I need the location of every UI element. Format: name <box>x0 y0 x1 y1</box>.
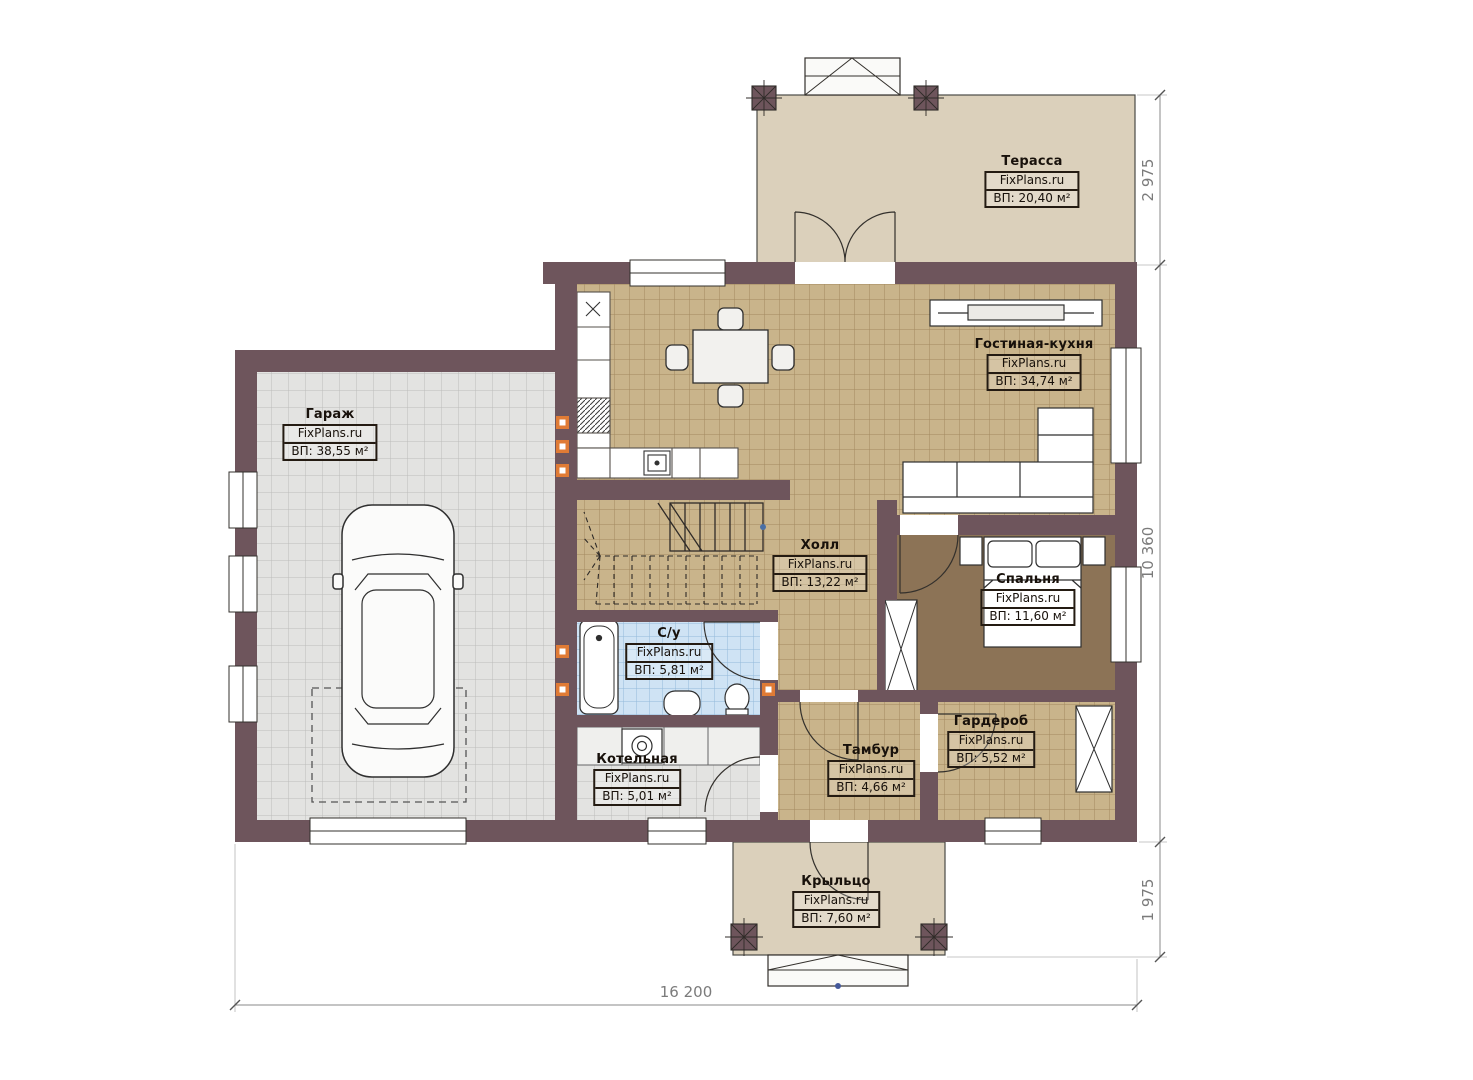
dimension-bottom: 16 200 <box>660 983 713 1001</box>
room-area: ВП: 5,01 м² <box>595 789 679 805</box>
room-name: Гардероб <box>947 714 1035 729</box>
room-name: Холл <box>772 538 867 553</box>
room-area: ВП: 7,60 м² <box>794 911 878 927</box>
room-info-box: FixPlans.ru ВП: 5,01 м² <box>593 769 681 806</box>
room-info-box: FixPlans.ru ВП: 5,81 м² <box>625 643 713 680</box>
dimension-right-top: 2 975 <box>1139 159 1157 202</box>
room-label-porch: Крыльцо FixPlans.ru ВП: 7,60 м² <box>792 874 880 928</box>
room-label-garage: Гараж FixPlans.ru ВП: 38,55 м² <box>282 407 377 461</box>
site-watermark: FixPlans.ru <box>794 893 878 911</box>
room-name: Тамбур <box>827 743 915 758</box>
tv-console <box>930 300 1102 326</box>
dimension-right-middle: 10 360 <box>1139 527 1157 580</box>
site-watermark: FixPlans.ru <box>627 645 711 663</box>
wardrobe-closet <box>1076 706 1112 792</box>
room-label-bathroom: С/у FixPlans.ru ВП: 5,81 м² <box>625 626 713 680</box>
car <box>333 505 463 777</box>
site-watermark: FixPlans.ru <box>774 557 865 575</box>
floor-plan-page: Терасса FixPlans.ru ВП: 20,40 м² Гараж F… <box>0 0 1473 1080</box>
room-info-box: FixPlans.ru ВП: 13,22 м² <box>772 555 867 592</box>
kitchen-sink <box>644 451 670 475</box>
room-area: ВП: 34,74 м² <box>988 374 1079 390</box>
room-info-box: FixPlans.ru ВП: 38,55 м² <box>282 424 377 461</box>
room-label-boiler: Котельная FixPlans.ru ВП: 5,01 м² <box>593 752 681 806</box>
room-area: ВП: 11,60 м² <box>982 609 1073 625</box>
room-area: ВП: 5,81 м² <box>627 663 711 679</box>
room-name: Крыльцо <box>792 874 880 889</box>
room-label-bedroom: Спальня FixPlans.ru ВП: 11,60 м² <box>980 572 1075 626</box>
room-info-box: FixPlans.ru ВП: 34,74 м² <box>986 354 1081 391</box>
site-watermark: FixPlans.ru <box>982 591 1073 609</box>
room-area: ВП: 5,52 м² <box>949 751 1033 767</box>
porch-steps <box>768 955 908 989</box>
site-watermark: FixPlans.ru <box>595 771 679 789</box>
room-area: ВП: 4,66 м² <box>829 780 913 796</box>
room-label-terrace: Терасса FixPlans.ru ВП: 20,40 м² <box>984 154 1079 208</box>
room-area: ВП: 13,22 м² <box>774 575 865 591</box>
room-label-hall: Холл FixPlans.ru ВП: 13,22 м² <box>772 538 867 592</box>
room-info-box: FixPlans.ru ВП: 20,40 м² <box>984 171 1079 208</box>
site-watermark: FixPlans.ru <box>988 356 1079 374</box>
room-name: Терасса <box>984 154 1079 169</box>
bedroom-closet <box>885 600 917 698</box>
room-info-box: FixPlans.ru ВП: 4,66 м² <box>827 760 915 797</box>
floor-plan-drawing <box>0 0 1473 1080</box>
room-name: С/у <box>625 626 713 641</box>
room-name: Гостиная-кухня <box>975 337 1094 352</box>
bathtub <box>580 620 618 714</box>
room-area: ВП: 20,40 м² <box>986 191 1077 207</box>
toilet <box>725 684 749 715</box>
site-watermark: FixPlans.ru <box>949 733 1033 751</box>
dimension-right-bottom: 1 975 <box>1139 879 1157 922</box>
room-info-box: FixPlans.ru ВП: 5,52 м² <box>947 731 1035 768</box>
site-watermark: FixPlans.ru <box>829 762 913 780</box>
room-name: Котельная <box>593 752 681 767</box>
room-label-vestibule: Тамбур FixPlans.ru ВП: 4,66 м² <box>827 743 915 797</box>
room-name: Спальня <box>980 572 1075 587</box>
site-watermark: FixPlans.ru <box>284 426 375 444</box>
terrace-steps <box>805 58 900 95</box>
site-watermark: FixPlans.ru <box>986 173 1077 191</box>
room-label-wardrobe: Гардероб FixPlans.ru ВП: 5,52 м² <box>947 714 1035 768</box>
room-info-box: FixPlans.ru ВП: 7,60 м² <box>792 891 880 928</box>
room-label-living-kitchen: Гостиная-кухня FixPlans.ru ВП: 34,74 м² <box>975 337 1094 391</box>
room-info-box: FixPlans.ru ВП: 11,60 м² <box>980 589 1075 626</box>
room-name: Гараж <box>282 407 377 422</box>
room-area: ВП: 38,55 м² <box>284 444 375 460</box>
